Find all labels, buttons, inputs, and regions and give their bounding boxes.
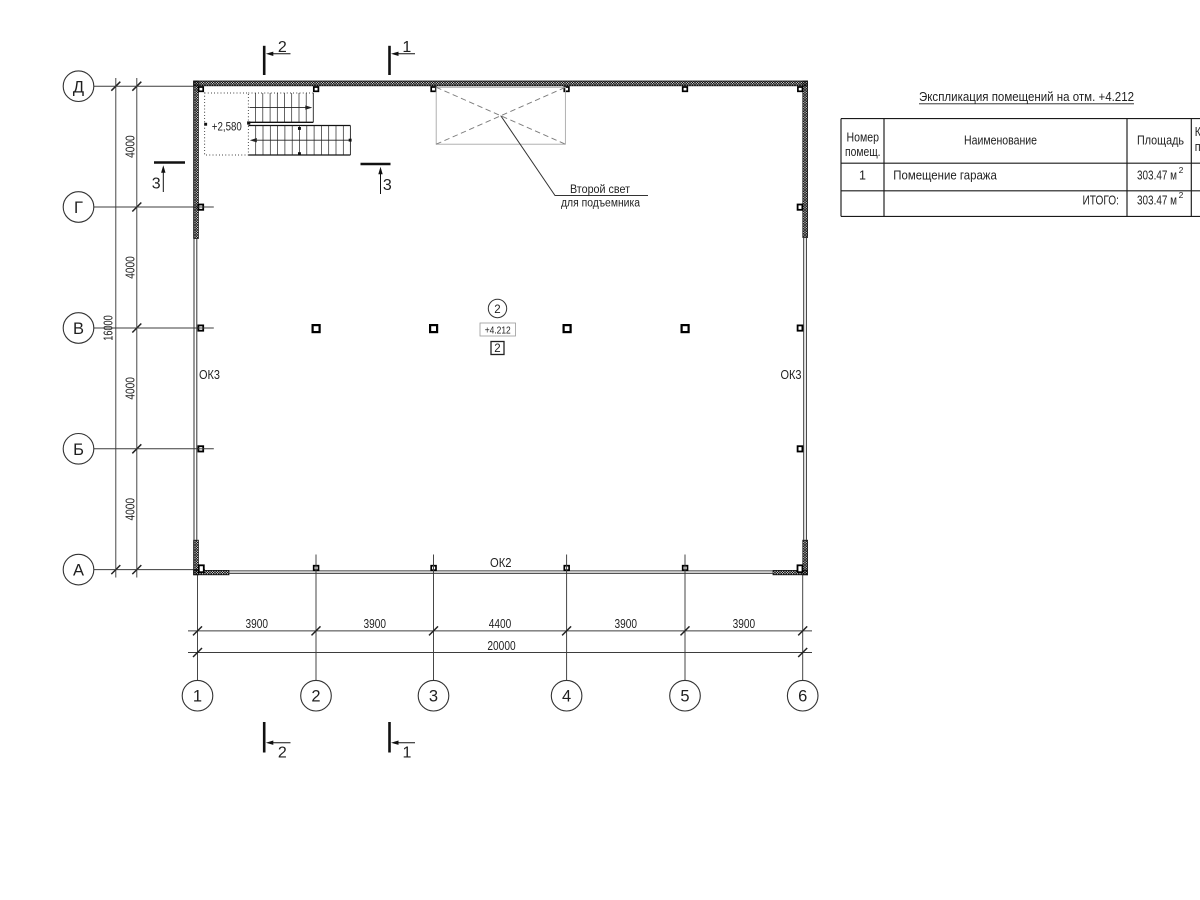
svg-text:Б: Б <box>73 441 84 459</box>
svg-text:ИТОГО:: ИТОГО: <box>1083 193 1120 207</box>
svg-text:303.47 м: 303.47 м <box>1137 169 1177 183</box>
svg-text:6: 6 <box>798 688 807 706</box>
svg-text:ОК2: ОК2 <box>490 556 512 570</box>
svg-text:Г: Г <box>74 199 83 217</box>
svg-text:Номер: Номер <box>847 131 880 145</box>
svg-text:3: 3 <box>383 177 392 194</box>
svg-text:1: 1 <box>193 688 202 706</box>
svg-text:2: 2 <box>278 745 287 762</box>
svg-text:2: 2 <box>311 688 320 706</box>
svg-text:В: В <box>73 320 84 338</box>
svg-text:3900: 3900 <box>615 617 638 631</box>
svg-text:2: 2 <box>1179 165 1184 175</box>
svg-text:Площадь: Площадь <box>1137 133 1184 147</box>
svg-text:3: 3 <box>429 688 438 706</box>
svg-text:1: 1 <box>403 745 412 762</box>
svg-text:4000: 4000 <box>123 135 137 158</box>
svg-text:ОК3: ОК3 <box>781 368 802 382</box>
svg-text:1: 1 <box>859 169 866 183</box>
svg-text:3: 3 <box>152 175 161 192</box>
svg-text:Наименование: Наименование <box>964 133 1037 147</box>
svg-text:4000: 4000 <box>123 498 137 521</box>
svg-text:20000: 20000 <box>487 639 515 653</box>
svg-text:помещ.: помещ. <box>845 145 881 159</box>
svg-text:4000: 4000 <box>123 377 137 400</box>
svg-text:+2,580: +2,580 <box>212 122 242 134</box>
svg-text:под: под <box>1195 140 1200 154</box>
svg-text:+4.212: +4.212 <box>485 325 511 336</box>
svg-text:Экспликация помещений на отм.: Экспликация помещений на отм. +4.212 <box>919 90 1134 104</box>
svg-text:2: 2 <box>494 343 500 355</box>
svg-text:303.47 м: 303.47 м <box>1137 193 1177 207</box>
svg-text:Кол: Кол <box>1195 125 1200 139</box>
svg-text:1: 1 <box>402 39 411 56</box>
svg-text:2: 2 <box>278 39 287 56</box>
svg-text:Второй свет: Второй свет <box>570 184 631 196</box>
svg-text:4400: 4400 <box>489 617 512 631</box>
svg-text:5: 5 <box>680 688 689 706</box>
svg-text:2: 2 <box>1179 190 1184 200</box>
svg-text:для подъемника: для подъемника <box>561 197 641 209</box>
svg-text:4: 4 <box>562 688 571 706</box>
svg-text:ОК3: ОК3 <box>199 368 220 382</box>
svg-text:3900: 3900 <box>246 617 269 631</box>
svg-text:3900: 3900 <box>364 617 387 631</box>
svg-text:3900: 3900 <box>733 617 756 631</box>
svg-text:2: 2 <box>494 304 500 316</box>
svg-text:Д: Д <box>73 78 84 96</box>
svg-text:Помещение гаража: Помещение гаража <box>893 169 997 183</box>
svg-text:А: А <box>73 562 84 580</box>
svg-text:4000: 4000 <box>123 256 137 279</box>
